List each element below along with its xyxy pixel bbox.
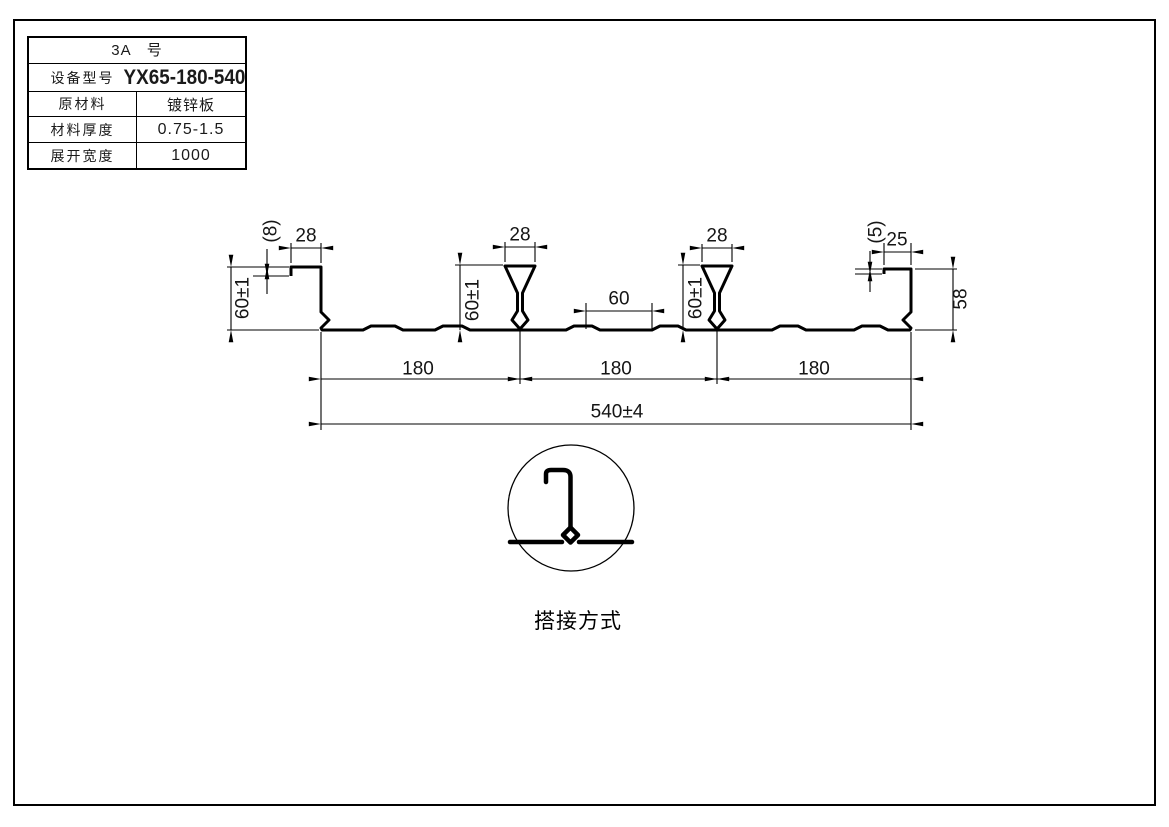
lap-joint-detail: 搭接方式 [508, 445, 634, 633]
dim-text-valley-flat: 60 [608, 289, 629, 310]
dim-overall-width: 540±4 [321, 402, 911, 425]
profile-rib1-path [505, 266, 535, 329]
detail-hook-web [546, 470, 571, 528]
dim-rib2-top-width: 28 [702, 226, 732, 263]
dim-left-lip: (8) [253, 219, 289, 294]
drawing-sheet: 3A 号 设备型号 YX65-180-540 原材料 镀锌板 材料厚度 0.75… [0, 0, 1169, 827]
dim-text-right-lip: (5) [866, 220, 887, 243]
dim-text-right-height: 58 [951, 288, 972, 309]
deck-profile-outline [291, 266, 911, 330]
dim-right-lip: (5) [855, 220, 887, 292]
dim-text-pitch2: 180 [600, 359, 632, 380]
dim-text-rib2-height: 60±1 [686, 277, 707, 319]
profile-sheet-path [291, 267, 911, 330]
profile-drawing: 60±1 (8) 28 28 60±1 60 [0, 0, 1169, 827]
dim-text-rib2-top: 28 [706, 226, 727, 247]
profile-rib2-path [702, 266, 732, 329]
dim-text-overall: 540±4 [591, 402, 644, 423]
dim-text-rib1-height: 60±1 [463, 279, 484, 321]
dim-right-height: 58 [915, 269, 972, 330]
dim-text-pitch3: 180 [798, 359, 830, 380]
dim-text-rib1-top: 28 [509, 225, 530, 246]
dim-text-left-lip: (8) [261, 219, 282, 242]
dim-valley-flat: 60 [586, 289, 652, 330]
dim-text-right-top: 25 [886, 230, 907, 251]
dim-text-left-height: 60±1 [233, 277, 254, 319]
dim-text-pitch1: 180 [402, 359, 434, 380]
dim-rib1-top-width: 28 [505, 225, 535, 263]
detail-caption: 搭接方式 [534, 610, 622, 633]
dim-right-top-width: 25 [884, 230, 911, 266]
dim-rib1-height: 60±1 [455, 265, 503, 330]
dim-rib2-height: 60±1 [678, 265, 707, 330]
dim-text-left-top: 28 [295, 226, 316, 247]
dim-left-top-width: 28 [291, 226, 321, 264]
